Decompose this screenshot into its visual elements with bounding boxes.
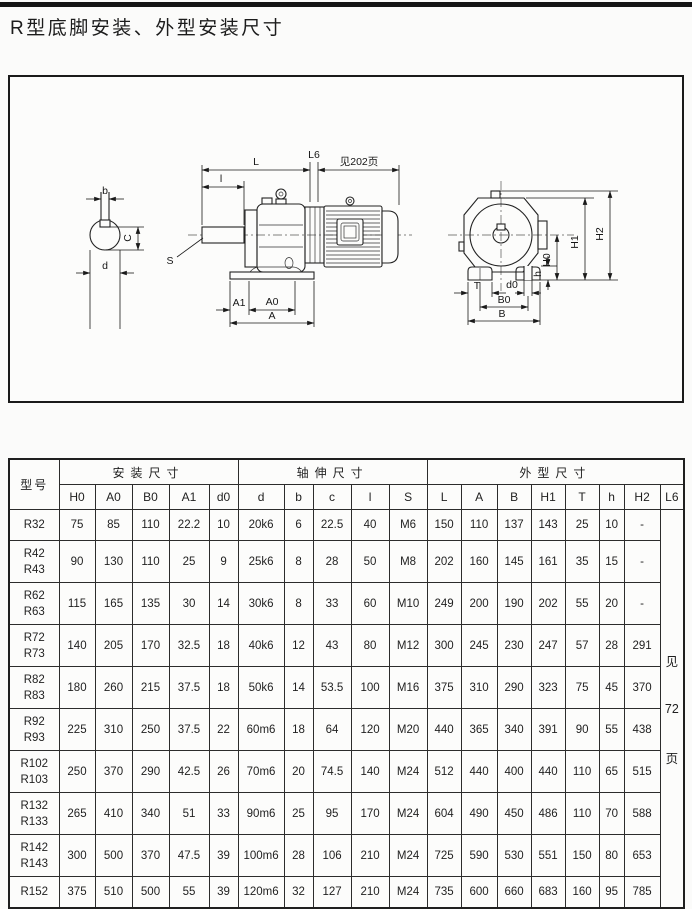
table-body: R32758511022.21020k6622.540M615011013714…: [9, 510, 684, 909]
col-header-A0: A0: [95, 485, 132, 510]
col-header-d: d: [238, 485, 284, 510]
table-cell: 70: [599, 793, 624, 835]
table-cell: 391: [531, 709, 565, 751]
col-header-b: b: [284, 485, 313, 510]
table-cell: 225: [59, 709, 95, 751]
see-page-72-note: 见72页: [660, 510, 684, 909]
table-cell: 33: [209, 793, 238, 835]
dim-label-B: B: [498, 308, 505, 320]
table-row: R82R8318026021537.51850k61453.5100M16375…: [9, 667, 684, 709]
table-cell: M6: [389, 510, 427, 541]
see-page-202-note: 见202页: [340, 156, 379, 168]
table-cell: 785: [624, 877, 660, 909]
table-cell: 735: [427, 877, 461, 909]
col-header-model: 型号: [9, 459, 59, 510]
col-group-header: 安装尺寸: [59, 459, 238, 485]
table-cell: 290: [497, 667, 531, 709]
dim-label-L: L: [253, 156, 259, 168]
dim-label-d0: d0: [506, 279, 518, 291]
table-cell: 95: [313, 793, 351, 835]
table-cell: 600: [461, 877, 497, 909]
table-cell: 37.5: [169, 709, 209, 751]
table-cell: M10: [389, 583, 427, 625]
col-header-H1: H1: [531, 485, 565, 510]
table-cell: 205: [95, 625, 132, 667]
model-cell: R132R133: [9, 793, 59, 835]
table-cell: 14: [284, 667, 313, 709]
model-cell: R72R73: [9, 625, 59, 667]
table-cell: M20: [389, 709, 427, 751]
table-cell: 9: [209, 541, 238, 583]
table-cell: 37.5: [169, 667, 209, 709]
table-cell: 400: [497, 751, 531, 793]
table-cell: 74.5: [313, 751, 351, 793]
table-cell: 310: [95, 709, 132, 751]
table-cell: 161: [531, 541, 565, 583]
table-cell: 150: [565, 835, 599, 877]
table-cell: 438: [624, 709, 660, 751]
table-cell: 40: [351, 510, 389, 541]
table-cell: 26: [209, 751, 238, 793]
table-cell: 137: [497, 510, 531, 541]
table-row: R62R63115165135301430k683360M10249200190…: [9, 583, 684, 625]
table-cell: 45: [599, 667, 624, 709]
table-row: R72R7314020517032.51840k6124380M12300245…: [9, 625, 684, 667]
table-cell: 247: [531, 625, 565, 667]
table-cell: 590: [461, 835, 497, 877]
table-cell: 15: [599, 541, 624, 583]
table-row: R32758511022.21020k6622.540M615011013714…: [9, 510, 684, 541]
table-cell: 28: [284, 835, 313, 877]
table-header: 型号安装尺寸轴伸尺寸外型尺寸H0A0B0A1d0dbclSLABH1ThH2L6: [9, 459, 684, 510]
table-cell: 265: [59, 793, 95, 835]
table-cell: 100m6: [238, 835, 284, 877]
table-row: R132R133265410340513390m62595170M2460449…: [9, 793, 684, 835]
table-cell: 160: [461, 541, 497, 583]
table-cell: 35: [565, 541, 599, 583]
table-cell: 6: [284, 510, 313, 541]
model-cell: R92R93: [9, 709, 59, 751]
dim-label-H0: H0: [541, 253, 553, 267]
table-cell: 22.2: [169, 510, 209, 541]
model-cell: R62R63: [9, 583, 59, 625]
dim-label-A: A: [268, 310, 275, 322]
side-view: S: [166, 149, 412, 327]
table-cell: 47.5: [169, 835, 209, 877]
table-cell: 486: [531, 793, 565, 835]
top-rule: [0, 2, 692, 7]
table-row: R142R14330050037047.539100m628106210M247…: [9, 835, 684, 877]
table-cell: 300: [59, 835, 95, 877]
table-cell: 260: [95, 667, 132, 709]
col-header-H2: H2: [624, 485, 660, 510]
table-cell: M24: [389, 835, 427, 877]
table-cell: 90: [565, 709, 599, 751]
table-cell: M24: [389, 751, 427, 793]
table-cell: M12: [389, 625, 427, 667]
table-cell: 70m6: [238, 751, 284, 793]
table-cell: 160: [565, 877, 599, 909]
table-cell: 80: [599, 835, 624, 877]
table-cell: 57: [565, 625, 599, 667]
table-cell: 32.5: [169, 625, 209, 667]
table-cell: 51: [169, 793, 209, 835]
table-cell: 170: [132, 625, 169, 667]
table-cell: 215: [132, 667, 169, 709]
table-cell: 12: [284, 625, 313, 667]
dim-label-h: h: [532, 271, 544, 277]
table-cell: 65: [599, 751, 624, 793]
dim-label-l: l: [220, 173, 222, 185]
table-cell: 110: [565, 793, 599, 835]
table-cell: 18: [209, 625, 238, 667]
table-cell: 140: [351, 751, 389, 793]
shaft-cross-section: b C d: [76, 185, 144, 329]
table-cell: 95: [599, 877, 624, 909]
table-cell: 300: [427, 625, 461, 667]
table-cell: 110: [132, 510, 169, 541]
table-cell: 588: [624, 793, 660, 835]
table-cell: 110: [565, 751, 599, 793]
table-cell: 75: [565, 667, 599, 709]
dim-label-H2: H2: [594, 227, 606, 241]
table-cell: 370: [95, 751, 132, 793]
col-header-H0: H0: [59, 485, 95, 510]
table-cell: 18: [284, 709, 313, 751]
table-cell: 210: [351, 835, 389, 877]
table-cell: M16: [389, 667, 427, 709]
table-cell: 653: [624, 835, 660, 877]
table-cell: 165: [95, 583, 132, 625]
col-group-header: 外型尺寸: [427, 459, 684, 485]
table-cell: 28: [599, 625, 624, 667]
table-cell: 551: [531, 835, 565, 877]
table-cell: 25: [284, 793, 313, 835]
table-cell: 340: [497, 709, 531, 751]
model-cell: R142R143: [9, 835, 59, 877]
table-cell: 110: [461, 510, 497, 541]
table-cell: 39: [209, 835, 238, 877]
col-header-B: B: [497, 485, 531, 510]
model-cell: R82R83: [9, 667, 59, 709]
dim-label-L6: L6: [308, 149, 320, 161]
table-cell: 110: [132, 541, 169, 583]
technical-drawing: b C d S: [8, 75, 684, 403]
table-cell: 370: [624, 667, 660, 709]
table-cell: 150: [427, 510, 461, 541]
table-cell: M24: [389, 793, 427, 835]
dim-label-b: b: [102, 185, 108, 197]
table-cell: 25: [169, 541, 209, 583]
table-cell: 20: [284, 751, 313, 793]
col-header-B0: B0: [132, 485, 169, 510]
col-header-c: c: [313, 485, 351, 510]
table-cell: 25: [565, 510, 599, 541]
table-cell: 80: [351, 625, 389, 667]
table-cell: 440: [461, 751, 497, 793]
table-cell: 60m6: [238, 709, 284, 751]
table-cell: 8: [284, 541, 313, 583]
table-cell: 90m6: [238, 793, 284, 835]
table-cell: 120m6: [238, 877, 284, 909]
table-cell: 115: [59, 583, 95, 625]
table-cell: 683: [531, 877, 565, 909]
dimensions-table: 型号安装尺寸轴伸尺寸外型尺寸H0A0B0A1d0dbclSLABH1ThH2L6…: [8, 458, 685, 909]
table-cell: 43: [313, 625, 351, 667]
dim-label-d: d: [102, 260, 108, 272]
table-cell: 8: [284, 583, 313, 625]
table-cell: 530: [497, 835, 531, 877]
table-cell: 340: [132, 793, 169, 835]
table-cell: 140: [59, 625, 95, 667]
table-cell: 33: [313, 583, 351, 625]
page-title: R型底脚安装、外型安装尺寸: [10, 13, 284, 40]
table-cell: 310: [461, 667, 497, 709]
table-cell: 250: [59, 751, 95, 793]
table-cell: 22: [209, 709, 238, 751]
table-cell: 55: [169, 877, 209, 909]
col-header-A1: A1: [169, 485, 209, 510]
col-header-l: l: [351, 485, 389, 510]
table-cell: 500: [95, 835, 132, 877]
col-header-d0: d0: [209, 485, 238, 510]
table-cell: 85: [95, 510, 132, 541]
dim-label-A1: A1: [233, 297, 246, 309]
table-cell: 660: [497, 877, 531, 909]
table-cell: 100: [351, 667, 389, 709]
table-row: R102R10325037029042.52670m62074.5140M245…: [9, 751, 684, 793]
table-cell: 250: [132, 709, 169, 751]
dim-label-A0: A0: [266, 296, 279, 308]
table-cell: 64: [313, 709, 351, 751]
dim-label-S: S: [166, 255, 173, 267]
table-row: R42R439013011025925k682850M8202160145161…: [9, 541, 684, 583]
table-cell: 210: [351, 877, 389, 909]
table-cell: 490: [461, 793, 497, 835]
dim-label-B0: B0: [498, 294, 511, 306]
table-cell: 725: [427, 835, 461, 877]
col-header-L: L: [427, 485, 461, 510]
table-cell: 500: [132, 877, 169, 909]
table-cell: 200: [461, 583, 497, 625]
col-group-header: 轴伸尺寸: [238, 459, 427, 485]
table-cell: 202: [531, 583, 565, 625]
table-cell: 291: [624, 625, 660, 667]
table-cell: 39: [209, 877, 238, 909]
table-cell: 18: [209, 667, 238, 709]
table-cell: -: [624, 541, 660, 583]
table-cell: 202: [427, 541, 461, 583]
table-cell: 130: [95, 541, 132, 583]
table-cell: 450: [497, 793, 531, 835]
table-cell: 50: [351, 541, 389, 583]
table-cell: 604: [427, 793, 461, 835]
table-cell: 375: [427, 667, 461, 709]
table-cell: 75: [59, 510, 95, 541]
col-header-h: h: [599, 485, 624, 510]
model-cell: R102R103: [9, 751, 59, 793]
model-cell: R32: [9, 510, 59, 541]
table-cell: 90: [59, 541, 95, 583]
table-cell: 249: [427, 583, 461, 625]
table-row: R92R9322531025037.52260m61864120M2044036…: [9, 709, 684, 751]
table-cell: 20: [599, 583, 624, 625]
gearmotor-dimension-drawing: b C d S: [10, 77, 682, 401]
table-cell: 370: [132, 835, 169, 877]
table-cell: 410: [95, 793, 132, 835]
table-cell: 290: [132, 751, 169, 793]
table-cell: 245: [461, 625, 497, 667]
table-cell: 127: [313, 877, 351, 909]
table-cell: 30k6: [238, 583, 284, 625]
col-header-A: A: [461, 485, 497, 510]
table-cell: 22.5: [313, 510, 351, 541]
table-cell: M24: [389, 877, 427, 909]
dim-label-H1: H1: [569, 235, 581, 249]
table-cell: M8: [389, 541, 427, 583]
front-view: H0 H1 H2 h T d0: [448, 181, 618, 325]
table-cell: 135: [132, 583, 169, 625]
table-cell: 30: [169, 583, 209, 625]
table-cell: 55: [565, 583, 599, 625]
col-header-T: T: [565, 485, 599, 510]
col-header-S: S: [389, 485, 427, 510]
table-cell: 323: [531, 667, 565, 709]
table-cell: 10: [209, 510, 238, 541]
table-cell: 32: [284, 877, 313, 909]
table-cell: 180: [59, 667, 95, 709]
table-cell: 143: [531, 510, 565, 541]
table-cell: 53.5: [313, 667, 351, 709]
table-cell: 106: [313, 835, 351, 877]
table-cell: 50k6: [238, 667, 284, 709]
table-row: R1523755105005539120m632127210M247356006…: [9, 877, 684, 909]
table-cell: 14: [209, 583, 238, 625]
table-cell: 440: [531, 751, 565, 793]
table-cell: 230: [497, 625, 531, 667]
table-cell: 28: [313, 541, 351, 583]
col-header-L6: L6: [660, 485, 684, 510]
table-cell: 170: [351, 793, 389, 835]
table-cell: 25k6: [238, 541, 284, 583]
table-cell: 10: [599, 510, 624, 541]
table-cell: -: [624, 583, 660, 625]
table-cell: 190: [497, 583, 531, 625]
table-cell: -: [624, 510, 660, 541]
table-cell: 20k6: [238, 510, 284, 541]
table-cell: 145: [497, 541, 531, 583]
table-cell: 440: [427, 709, 461, 751]
model-cell: R152: [9, 877, 59, 909]
table-cell: 510: [95, 877, 132, 909]
table-cell: 60: [351, 583, 389, 625]
table-cell: 120: [351, 709, 389, 751]
table-cell: 512: [427, 751, 461, 793]
dim-label-C: C: [122, 234, 134, 242]
table-cell: 40k6: [238, 625, 284, 667]
table-cell: 375: [59, 877, 95, 909]
table-cell: 42.5: [169, 751, 209, 793]
table-cell: 365: [461, 709, 497, 751]
model-cell: R42R43: [9, 541, 59, 583]
table-cell: 55: [599, 709, 624, 751]
table-cell: 515: [624, 751, 660, 793]
